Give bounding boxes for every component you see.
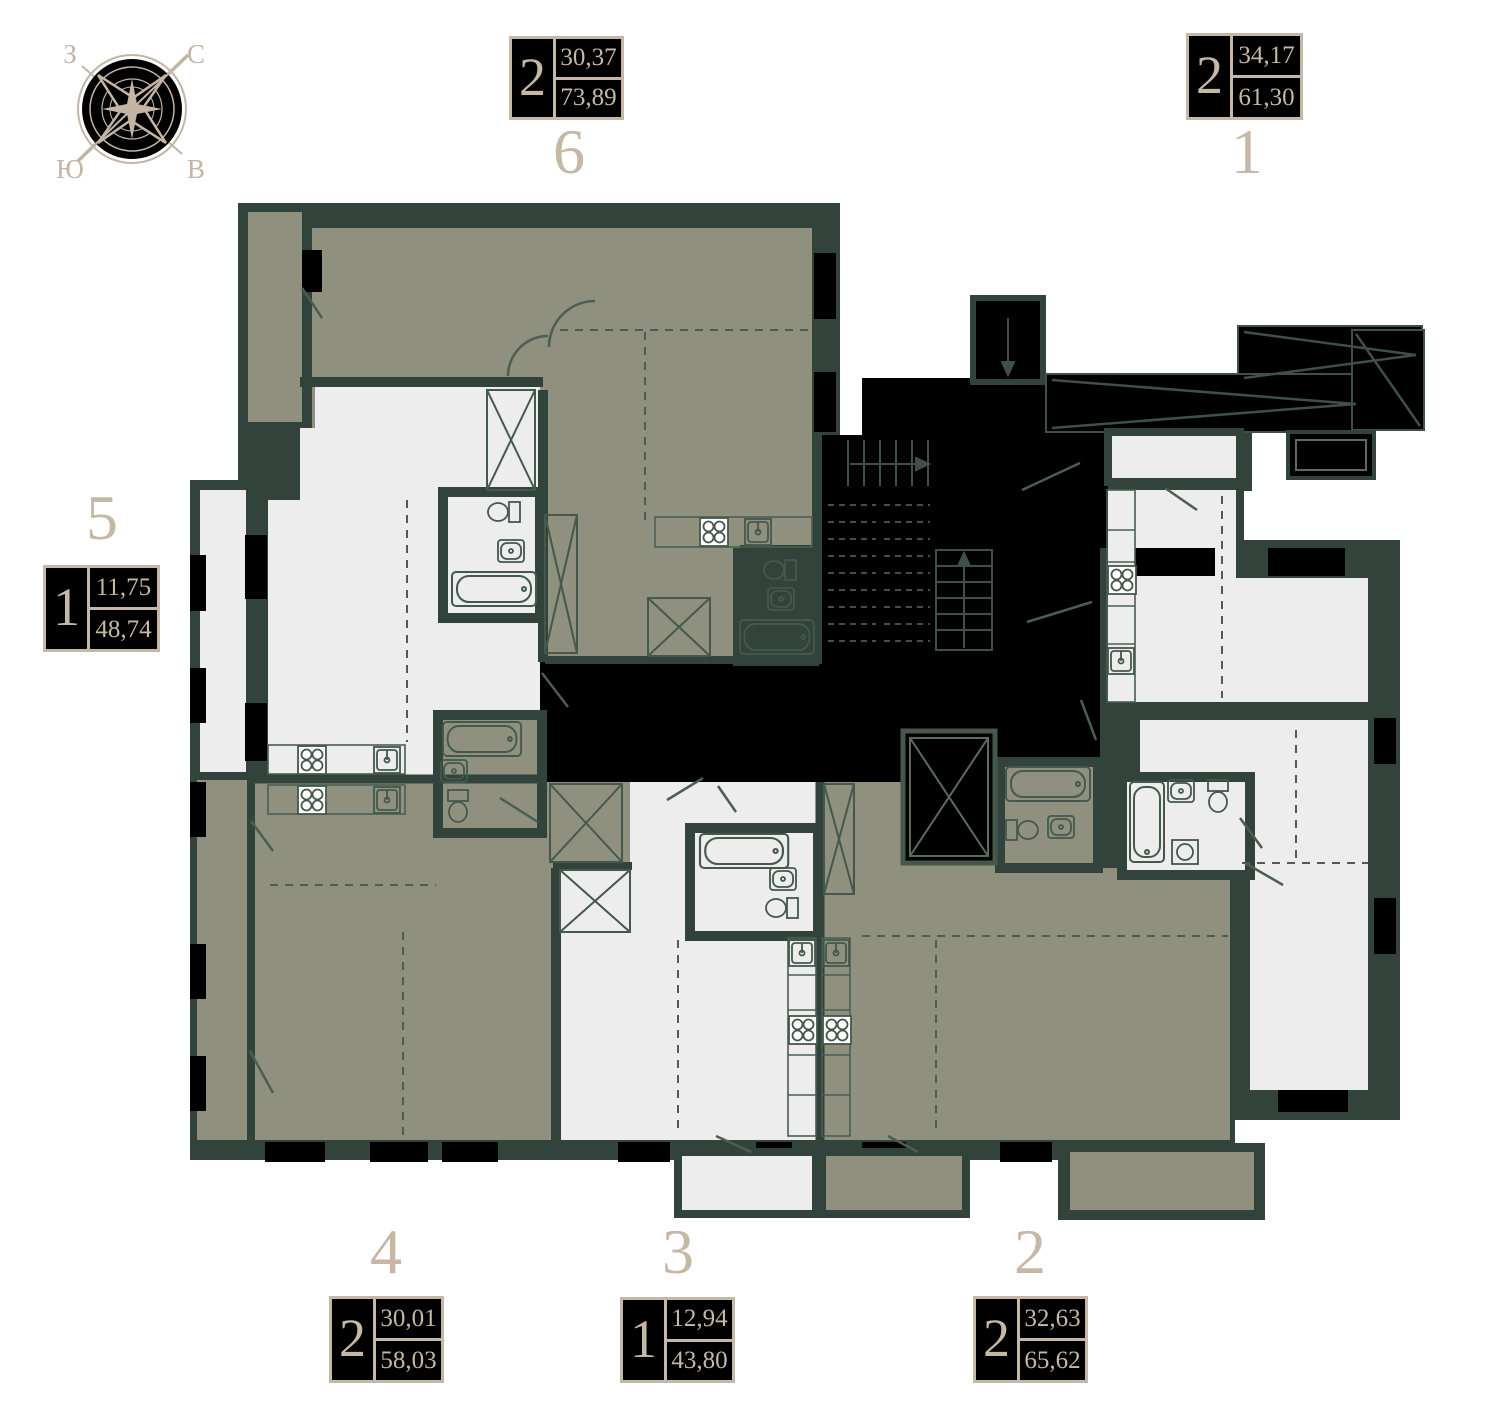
unit-5-number: 5 — [86, 486, 118, 550]
unit-5-total-area: 48,74 — [90, 610, 157, 649]
unit-3-rooms: 1 — [623, 1300, 667, 1380]
unit-2-total-area: 65,62 — [1020, 1341, 1085, 1380]
unit-1-number: 1 — [1231, 120, 1263, 184]
unit-5-rooms: 1 — [46, 568, 90, 649]
unit-6-living-area: 30,37 — [556, 39, 621, 80]
unit-2-living-area: 32,63 — [1020, 1299, 1085, 1341]
compass-south-letter: Ю — [56, 154, 84, 184]
unit-2-number: 2 — [1014, 1220, 1046, 1284]
compass-north-letter: С — [187, 39, 205, 69]
unit-2-badge: 2 32,63 65,62 — [973, 1296, 1088, 1383]
compass-rose: З С Ю В — [48, 28, 220, 188]
unit-1-living-area: 34,17 — [1233, 36, 1300, 78]
compass-east-letter: В — [187, 154, 205, 184]
unit-3-number: 3 — [662, 1220, 694, 1284]
unit-4-living-area: 30,01 — [376, 1299, 441, 1341]
unit-4-number: 4 — [370, 1220, 402, 1284]
unit-5-badge: 1 11,75 48,74 — [43, 565, 160, 652]
unit-1-rooms: 2 — [1189, 36, 1233, 117]
floor-plan — [185, 195, 1440, 1230]
unit-4-total-area: 58,03 — [376, 1341, 441, 1380]
unit-1-badge: 2 34,17 61,30 — [1186, 33, 1303, 120]
unit-6-number: 6 — [553, 120, 585, 184]
unit-2-rooms: 2 — [976, 1299, 1020, 1380]
unit-5-living-area: 11,75 — [90, 568, 157, 610]
balconies — [678, 1148, 1258, 1214]
unit-3-total-area: 43,80 — [667, 1342, 732, 1381]
unit-3-badge: 1 12,94 43,80 — [620, 1297, 735, 1383]
unit-4-badge: 2 30,01 58,03 — [329, 1296, 444, 1383]
unit-1-total-area: 61,30 — [1233, 78, 1300, 117]
unit-6-rooms: 2 — [512, 39, 556, 117]
compass-west-letter: З — [63, 39, 77, 69]
unit-6-badge: 2 30,37 73,89 — [509, 36, 624, 120]
floor-plan-page: З С Ю В — [0, 0, 1500, 1421]
unit-4-rooms: 2 — [332, 1299, 376, 1380]
unit-6-total-area: 73,89 — [556, 80, 621, 118]
elevator-shaft — [903, 731, 995, 863]
unit-3-living-area: 12,94 — [667, 1300, 732, 1342]
